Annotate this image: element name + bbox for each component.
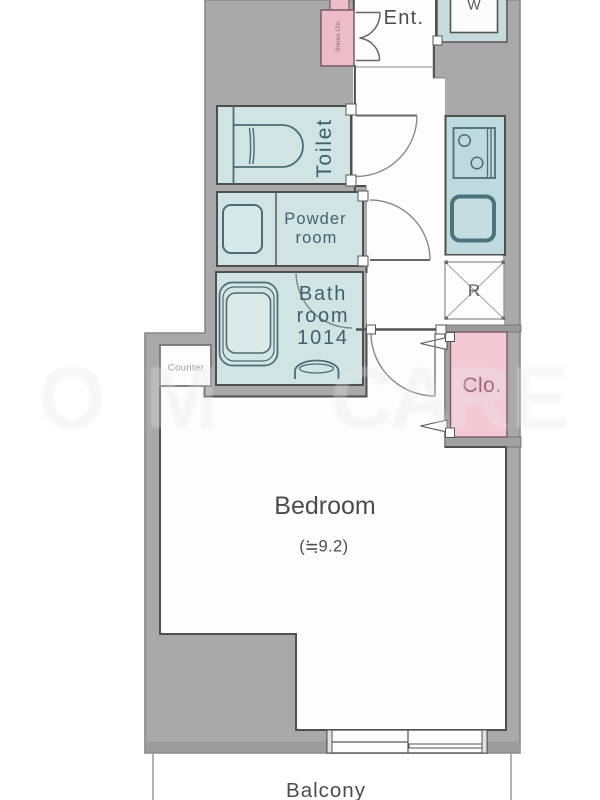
svg-text:Bedroom: Bedroom — [274, 492, 375, 520]
svg-text:Balcony: Balcony — [286, 779, 366, 800]
svg-text:room: room — [297, 305, 350, 327]
svg-text:(: ( — [299, 538, 305, 556]
svg-text:R: R — [468, 281, 480, 300]
svg-text:W: W — [467, 0, 481, 13]
svg-text:A: A — [389, 348, 453, 447]
svg-text:O: O — [38, 348, 106, 447]
svg-text:9.2): 9.2) — [319, 538, 349, 556]
svg-text:Powder: Powder — [284, 210, 347, 228]
svg-text:Bath: Bath — [299, 283, 347, 305]
svg-text:Ent.: Ent. — [384, 7, 425, 29]
svg-text:room: room — [296, 229, 338, 247]
svg-text:Shoes Clo.: Shoes Clo. — [335, 20, 342, 52]
svg-text:E: E — [511, 348, 570, 447]
svg-text:1014: 1014 — [297, 327, 349, 349]
svg-text:Toilet: Toilet — [313, 118, 336, 178]
svg-text:R: R — [447, 348, 511, 447]
svg-text:C: C — [330, 348, 394, 447]
svg-text:M: M — [145, 348, 218, 447]
